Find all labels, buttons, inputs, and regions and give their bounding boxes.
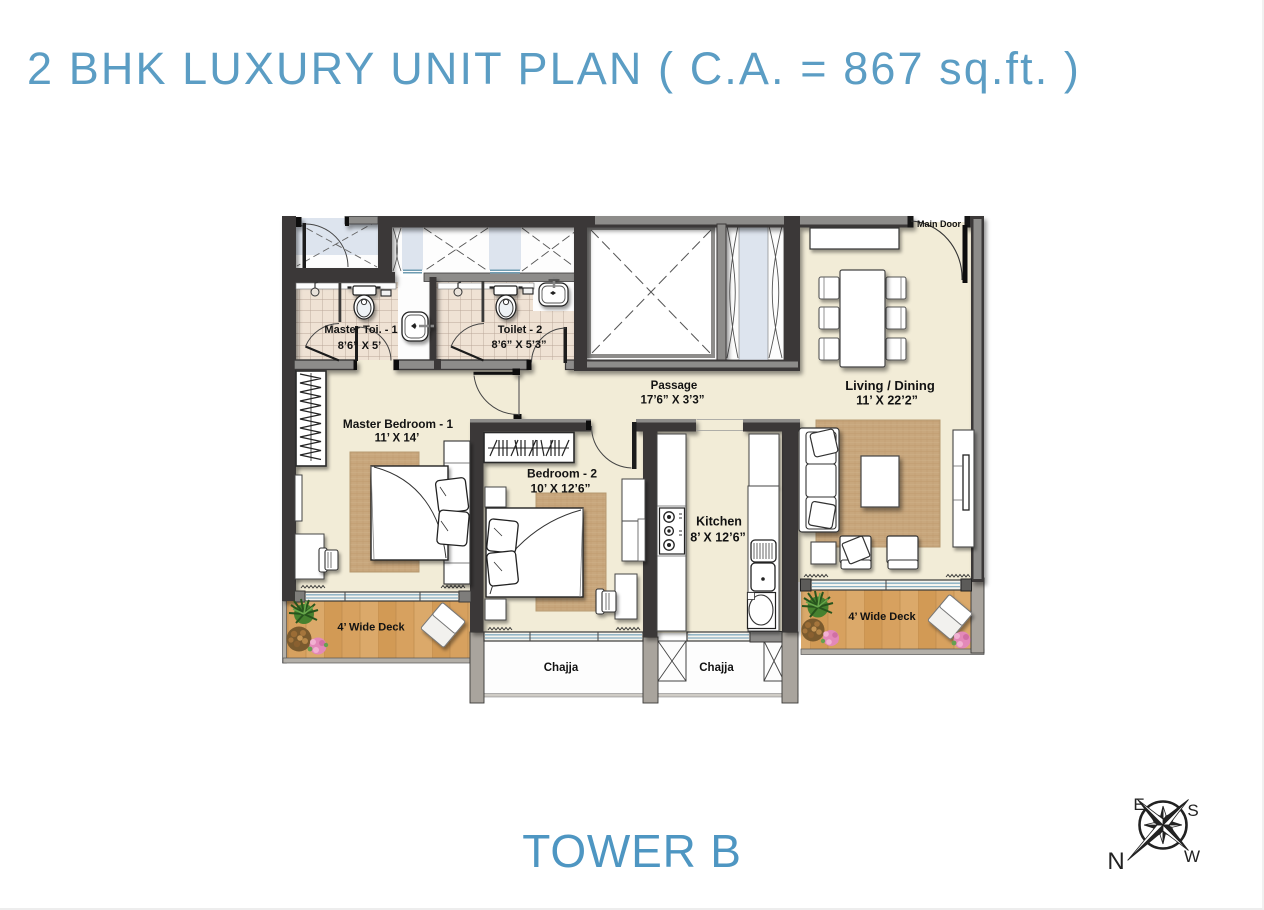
svg-text:E: E — [1133, 795, 1144, 814]
svg-text:11’ X 22’2”: 11’ X 22’2” — [856, 394, 918, 408]
svg-text:Chajja: Chajja — [544, 662, 579, 674]
svg-text:8’6” X 5’3”: 8’6” X 5’3” — [491, 339, 546, 351]
svg-text:Master Toi. - 1: Master Toi. - 1 — [324, 324, 397, 336]
svg-text:Master Bedroom - 1: Master Bedroom - 1 — [343, 417, 454, 431]
svg-text:Living / Dining: Living / Dining — [845, 378, 935, 393]
svg-text:8’ X 12’6”: 8’ X 12’6” — [690, 531, 746, 545]
svg-text:17’6” X 3’3”: 17’6” X 3’3” — [641, 395, 705, 407]
svg-text:4’ Wide Deck: 4’ Wide Deck — [337, 622, 405, 634]
svg-text:Passage: Passage — [651, 380, 698, 392]
svg-text:Kitchen: Kitchen — [696, 515, 742, 529]
svg-text:Main Door: Main Door — [917, 219, 961, 229]
svg-text:8’6” X 5’: 8’6” X 5’ — [338, 340, 381, 352]
svg-text:4’ Wide Deck: 4’ Wide Deck — [848, 611, 916, 623]
svg-text:11’ X 14’: 11’ X 14’ — [375, 433, 420, 445]
svg-text:Toilet - 2: Toilet - 2 — [498, 324, 542, 336]
svg-text:10’ X 12’6”: 10’ X 12’6” — [530, 482, 590, 496]
svg-text:Chajja: Chajja — [699, 662, 734, 674]
svg-text:S: S — [1187, 801, 1198, 820]
svg-text:Bedroom - 2: Bedroom - 2 — [527, 467, 597, 481]
